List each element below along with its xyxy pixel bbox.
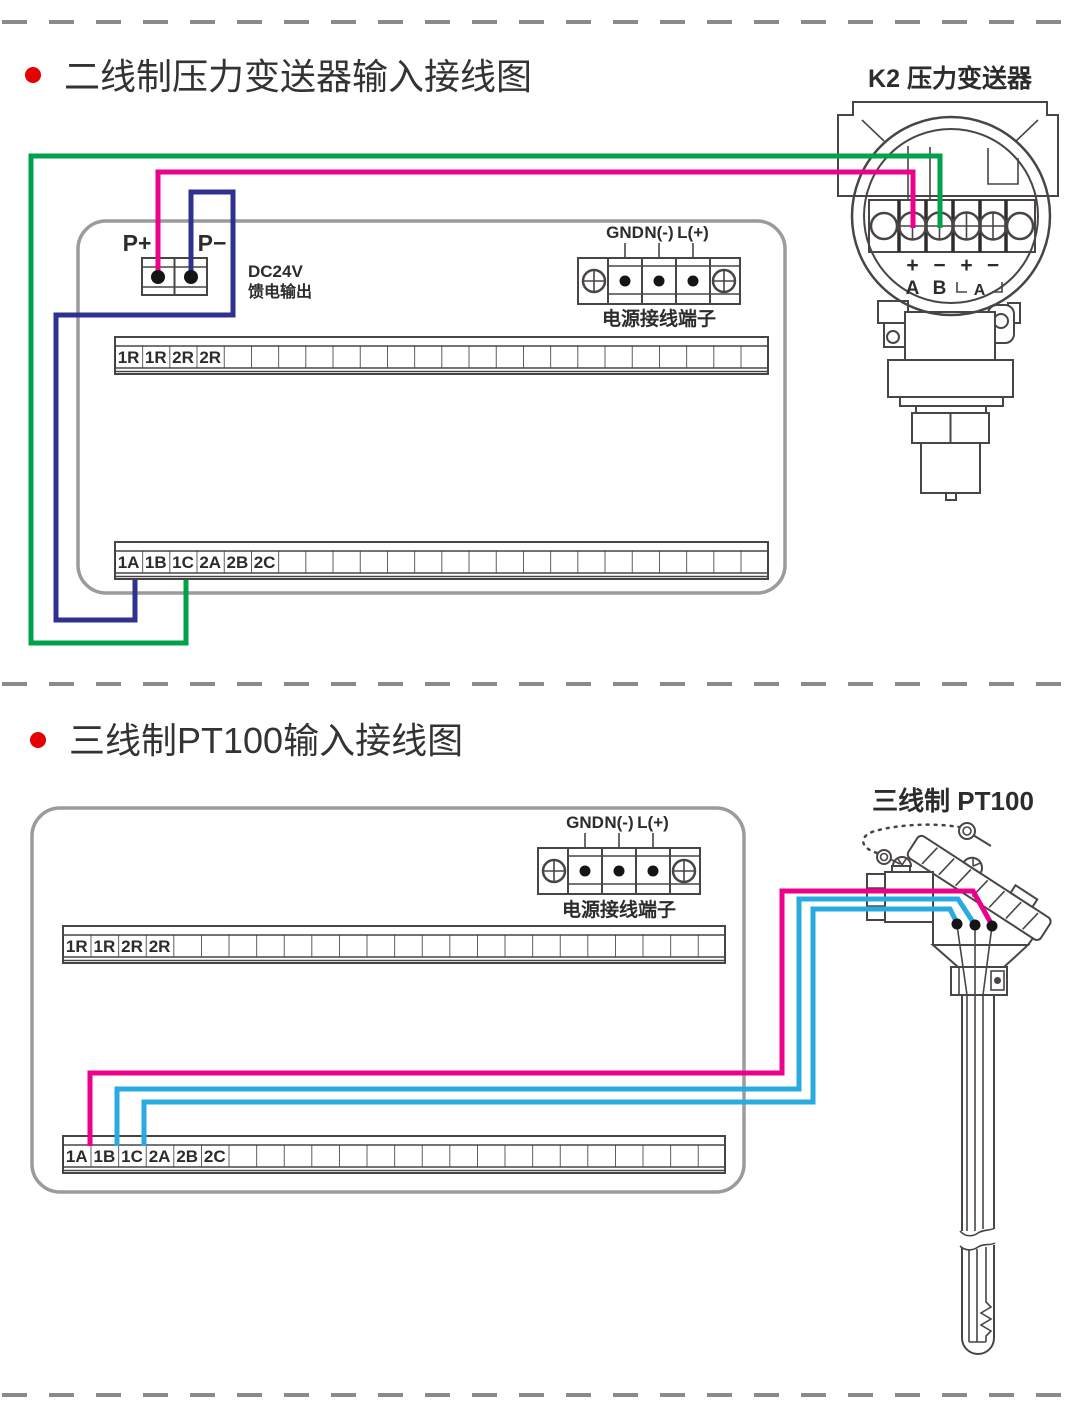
pt100-terminal-dot: [987, 921, 998, 932]
strip-cell-label: 2C: [254, 553, 276, 572]
strip-cell-label: 2A: [149, 1147, 171, 1166]
gnd-label: GND: [566, 813, 604, 832]
power-terminal-caption: 电源接线端子: [562, 898, 676, 921]
gnd-label: GND: [606, 223, 644, 242]
strip-cell-label: 1A: [118, 553, 140, 572]
strip-cell-label: 1R: [118, 348, 140, 367]
terminal-strip-relay-top: 1R 1R 2R 2R: [115, 337, 768, 374]
power-terminal-block-top: GND N(-) L(+) 电源接线端子: [578, 223, 740, 330]
terminal-b-label: B: [933, 278, 947, 299]
strip-cell-label: 1R: [94, 937, 116, 956]
strip-cell-label: 2A: [199, 553, 221, 572]
strip-cell-label: 1C: [121, 1147, 143, 1166]
power-terminal-block-bottom: GND N(-) L(+) 电源接线端子: [538, 813, 700, 921]
bullet-icon: [25, 67, 41, 83]
terminal-polarity-label: +: [906, 254, 918, 277]
wiring-diagram-page: 二线制压力变送器输入接线图 三线制PT100输入接线图 P+ P− DC24V …: [0, 0, 1080, 1411]
strip-cell-label: 1B: [94, 1147, 116, 1166]
wire-magenta-1a: [90, 891, 992, 1146]
strip-cell-label: 2B: [227, 553, 249, 572]
pressure-transmitter-drawing: K2 压力变送器 + − + − A: [838, 64, 1058, 500]
strip-cell-label: 1C: [172, 553, 194, 572]
pt100-probe-tip: [962, 1245, 994, 1354]
terminal-polarity-label: +: [960, 254, 972, 277]
terminal-a2-label: A: [974, 282, 986, 299]
l-label: L(+): [677, 223, 709, 242]
strip-cell-label: 1R: [145, 348, 167, 367]
strip-cell-label: 2R: [199, 348, 221, 367]
strip-cell-label: 2C: [204, 1147, 226, 1166]
strip-cell-label: 1B: [145, 553, 167, 572]
strip-cell-label: 2B: [176, 1147, 198, 1166]
transmitter-label: K2 压力变送器: [868, 64, 1033, 93]
feed-caption-line1: DC24V: [248, 262, 303, 281]
power-terminal-caption: 电源接线端子: [602, 307, 716, 330]
section-title-bottom: 三线制PT100输入接线图: [69, 720, 463, 761]
terminal-strip-relay-bottom: 1R 1R 2R 2R: [63, 926, 725, 963]
strip-cell-label: 1R: [66, 937, 88, 956]
eyelet-screw-icon: [959, 823, 975, 839]
pt100-neck: [933, 945, 1028, 967]
l-label: L(+): [637, 813, 669, 832]
p-minus-label: P−: [198, 230, 227, 256]
terminal-strip-input-top: 1A 1B 1C 2A 2B 2C: [115, 542, 768, 579]
feed-terminal-block: P+ P− DC24V 馈电输出: [123, 230, 312, 301]
terminal-polarity-label: −: [987, 254, 999, 277]
strip-cell-label: 2R: [121, 937, 143, 956]
p-minus-terminal-dot: [184, 270, 198, 284]
pt100-terminal-dot: [952, 919, 963, 930]
terminal-a-label: A: [906, 278, 920, 299]
terminal-polarity-label: −: [933, 254, 945, 277]
pt100-label: 三线制 PT100: [872, 786, 1034, 816]
feed-caption-line2: 馈电输出: [248, 282, 312, 301]
strip-cell-label: 1A: [66, 1147, 88, 1166]
pt100-probe-drawing: 三线制 PT100: [863, 786, 1058, 1354]
n-label: N(-): [644, 223, 673, 242]
bullet-icon: [30, 732, 46, 748]
strip-cell-label: 2R: [172, 348, 194, 367]
rtd-resistor-symbol: [981, 1247, 991, 1342]
strip-cell-label: 2R: [149, 937, 171, 956]
n-label: N(-): [604, 813, 633, 832]
terminal-strip-input-bottom: 1A 1B 1C 2A 2B 2C: [63, 1136, 725, 1173]
p-plus-label: P+: [123, 230, 152, 256]
wiring-diagram-canvas: 二线制压力变送器输入接线图 三线制PT100输入接线图 P+ P− DC24V …: [0, 0, 1080, 1411]
pt100-terminal-dot: [970, 920, 981, 931]
section-title-top: 二线制压力变送器输入接线图: [64, 56, 532, 97]
eyelet-screw-icon: [877, 850, 891, 864]
p-plus-terminal-dot: [151, 270, 165, 284]
